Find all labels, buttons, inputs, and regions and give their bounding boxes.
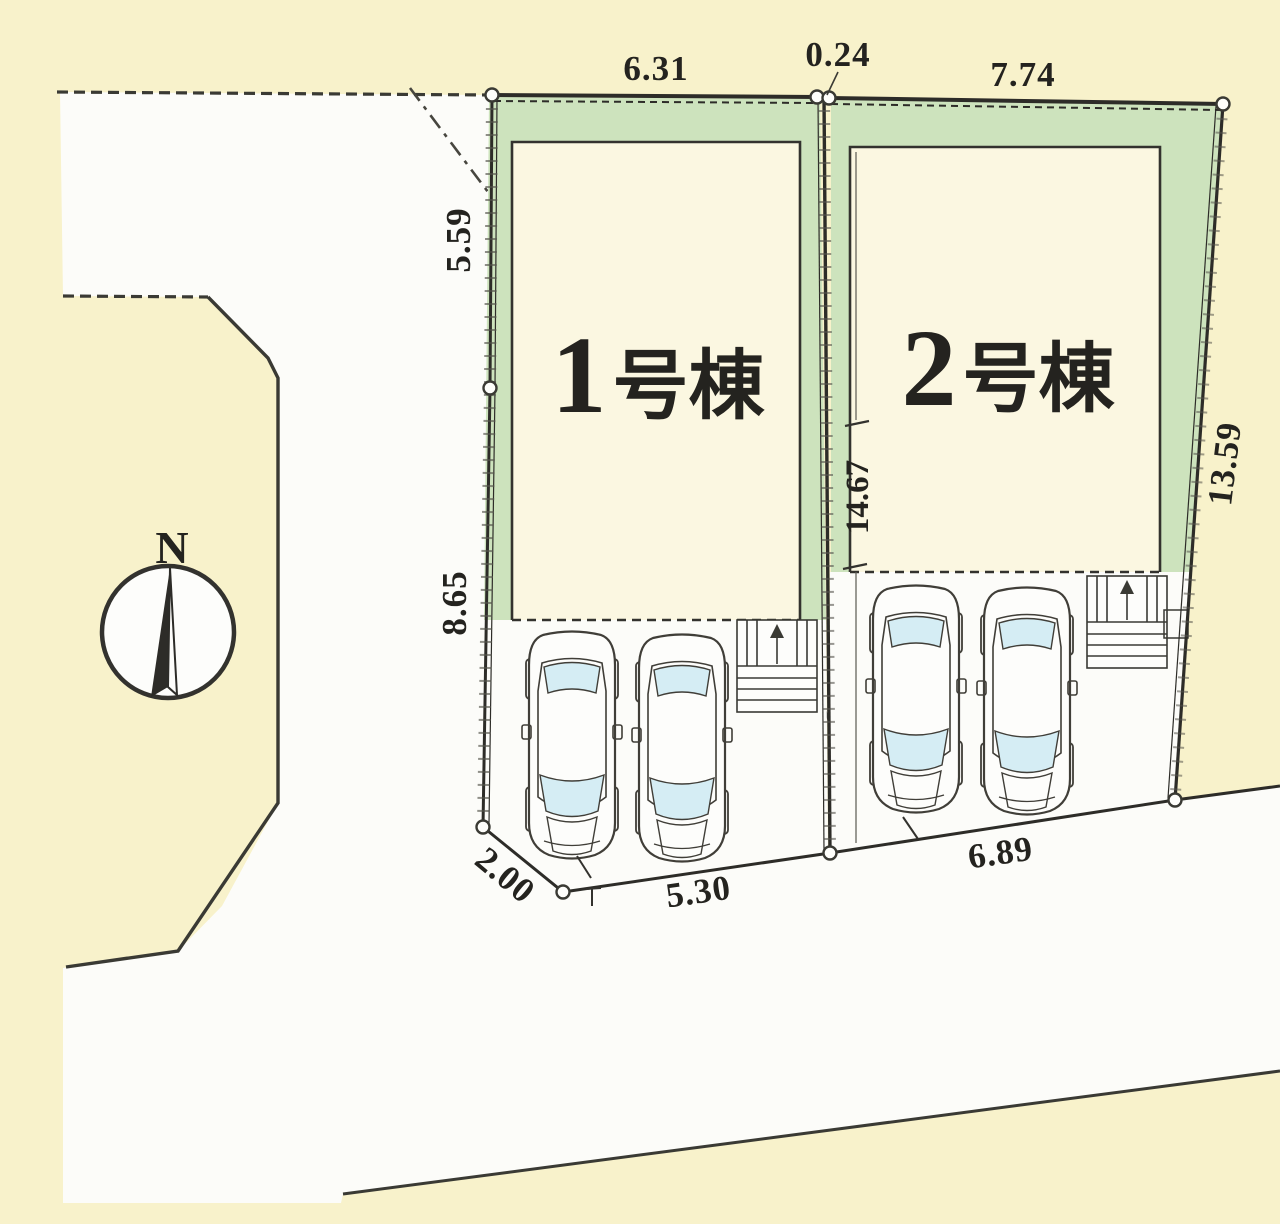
site-plan-page: 1号棟 2号棟 — [0, 0, 1280, 1224]
dimension-left-upper: 5.59 — [439, 207, 478, 272]
road-edge-island-dashed — [63, 296, 208, 297]
dimension-left-lower: 8.65 — [435, 570, 474, 635]
dimension-top-gap: 0.24 — [805, 35, 870, 74]
boundary-node — [557, 886, 570, 899]
car-icon — [632, 635, 732, 862]
dimension-divider: 14.67 — [840, 460, 876, 534]
site-plan-canvas: 1号棟 2号棟 — [0, 0, 1280, 1224]
dimension-top-plot2: 7.74 — [990, 55, 1055, 94]
entrance-steps-icon — [737, 620, 817, 712]
boundary-node — [486, 89, 499, 102]
boundary-node — [824, 847, 837, 860]
boundary-node — [1169, 794, 1182, 807]
boundary-node — [484, 382, 497, 395]
lot-1-boundary-north — [492, 95, 817, 97]
car-icon — [522, 632, 622, 859]
dim-tick — [586, 888, 601, 889]
dimension-top-plot1: 6.31 — [623, 49, 688, 88]
lot-1: 1号棟 — [483, 97, 828, 892]
compass-north-label: N — [155, 522, 188, 573]
boundary-node — [1217, 98, 1230, 111]
car-icon — [866, 586, 966, 813]
lot-2: 2号棟 — [830, 100, 1222, 853]
entrance-steps-icon — [1087, 576, 1167, 668]
boundary-node — [477, 821, 490, 834]
boundary-node — [823, 92, 836, 105]
car-icon — [977, 588, 1077, 815]
